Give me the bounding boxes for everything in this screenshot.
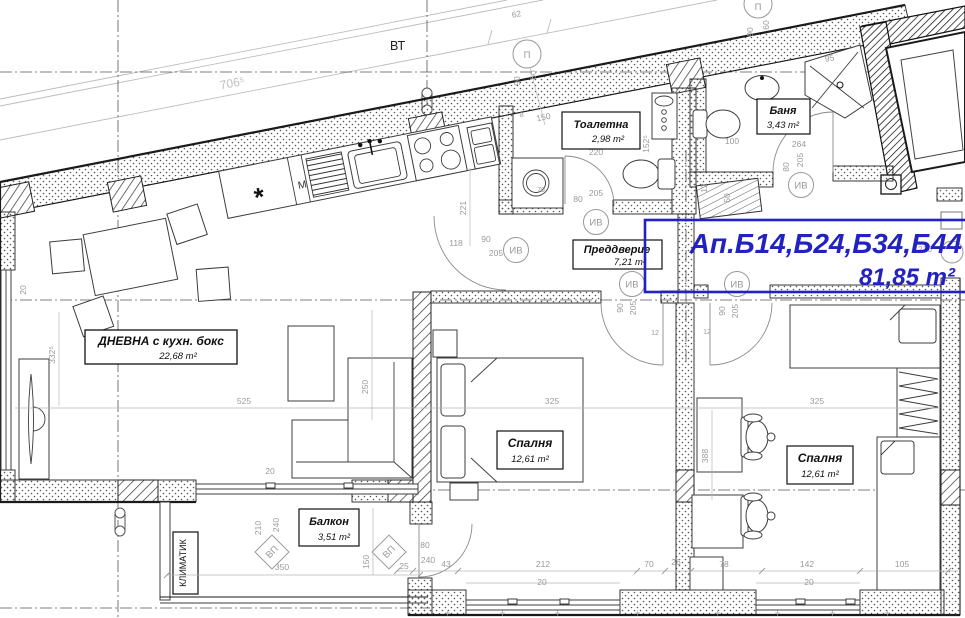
vt-label: ВТ <box>390 39 406 53</box>
stove-icon <box>407 125 467 180</box>
svg-text:3,43 m²: 3,43 m² <box>767 120 800 131</box>
svg-text:78: 78 <box>719 559 729 569</box>
svg-text:Спалня: Спалня <box>508 436 553 450</box>
washing-machine-icon <box>512 158 563 208</box>
svg-text:150: 150 <box>536 111 552 124</box>
room-label-bath: Баня 3,43 m² <box>757 99 810 134</box>
svg-text:Баня: Баня <box>769 105 797 117</box>
svg-text:332⁵: 332⁵ <box>47 346 57 364</box>
svg-text:80: 80 <box>781 162 791 172</box>
floor-plan: КЛИМАТИК * М <box>0 0 965 618</box>
svg-text:50: 50 <box>722 193 732 203</box>
svg-text:325: 325 <box>545 396 559 406</box>
svg-text:325: 325 <box>810 396 824 406</box>
floor-plan-drawing: КЛИМАТИК * М <box>0 0 965 618</box>
nightstand <box>433 330 457 357</box>
axis-marker-iv: ИВ <box>620 272 645 297</box>
svg-text:80: 80 <box>420 540 430 550</box>
svg-text:205: 205 <box>589 188 603 198</box>
bedroom1-furniture <box>433 330 583 500</box>
living-balcony-slider <box>196 483 418 494</box>
svg-text:25: 25 <box>399 561 409 571</box>
svg-text:250: 250 <box>360 380 370 394</box>
office-chair-icon <box>741 414 775 460</box>
svg-text:70: 70 <box>644 559 654 569</box>
svg-text:12,61 m²: 12,61 m² <box>511 454 549 465</box>
axis-marker-iv: ИВ <box>789 173 814 198</box>
svg-text:62: 62 <box>511 8 522 20</box>
shower-icon <box>805 45 872 118</box>
svg-text:ИВ: ИВ <box>625 280 638 291</box>
svg-text:П: П <box>524 50 531 61</box>
room-label-bedroom1: Спалня 12,61 m² <box>497 431 563 469</box>
office-chair-icon <box>741 493 775 539</box>
svg-text:90: 90 <box>512 76 522 86</box>
svg-text:80: 80 <box>573 194 583 204</box>
svg-text:12: 12 <box>703 329 711 336</box>
svg-text:Балкон: Балкон <box>309 516 349 528</box>
svg-text:2,98 m²: 2,98 m² <box>591 134 625 145</box>
svg-text:3,51 m²: 3,51 m² <box>318 532 351 543</box>
axis-marker-iv: ИВ <box>584 210 609 235</box>
svg-text:706⁵: 706⁵ <box>219 74 246 93</box>
bedroom1-window <box>466 599 620 610</box>
apartment-title: Ап.Б14,Б24,Б34,Б44 <box>689 228 963 259</box>
svg-text:118: 118 <box>449 238 463 248</box>
svg-text:205: 205 <box>489 248 503 258</box>
svg-text:205: 205 <box>795 153 805 167</box>
svg-text:150: 150 <box>361 555 371 569</box>
svg-text:Тоалетна: Тоалетна <box>574 119 629 131</box>
axis-marker-iv: ИВ <box>504 238 529 263</box>
room-label-living: ДНЕВНА с кухн. бокс 22,68 m² <box>85 330 237 364</box>
bedroom2-window <box>756 599 860 610</box>
ac-unit: КЛИМАТИК <box>173 532 198 594</box>
room-label-toilet: Тоалетна 2,98 m² <box>562 112 640 149</box>
bath-wc-icon <box>693 110 740 138</box>
svg-text:12: 12 <box>699 183 709 193</box>
toilet-wc-icon <box>623 159 675 189</box>
svg-text:12: 12 <box>651 330 659 337</box>
svg-text:ИВ: ИВ <box>794 181 807 192</box>
tv-unit <box>19 359 49 479</box>
desk <box>692 495 743 548</box>
svg-text:20: 20 <box>265 466 275 476</box>
toilet-cabinet <box>652 93 677 139</box>
svg-text:П: П <box>755 2 762 13</box>
svg-text:ИВ: ИВ <box>589 218 602 229</box>
svg-text:7,21 m²: 7,21 m² <box>614 257 647 268</box>
apartment-area: 81,85 m² <box>859 264 956 291</box>
svg-text:90: 90 <box>717 306 727 316</box>
svg-text:70: 70 <box>537 187 545 194</box>
svg-text:240: 240 <box>421 555 435 565</box>
svg-text:210: 210 <box>253 521 263 535</box>
svg-text:264: 264 <box>792 139 806 149</box>
svg-text:90: 90 <box>615 303 625 313</box>
svg-text:26: 26 <box>671 557 681 567</box>
wardrobe-icon <box>897 368 940 437</box>
svg-text:142: 142 <box>800 559 814 569</box>
single-bed-top <box>790 305 940 368</box>
svg-text:8: 8 <box>519 112 524 120</box>
svg-text:Преддверие: Преддверие <box>584 244 651 256</box>
svg-text:105: 105 <box>895 559 909 569</box>
svg-text:20: 20 <box>18 285 28 295</box>
nightstand <box>690 557 723 590</box>
axis-marker-p: П <box>744 0 772 18</box>
room-label-bedroom2: Спалня 12,61 m² <box>787 446 853 484</box>
svg-text:152⁵: 152⁵ <box>641 135 651 153</box>
svg-text:Спалня: Спалня <box>798 451 843 465</box>
svg-text:525: 525 <box>237 396 251 406</box>
svg-text:ИВ: ИВ <box>730 280 743 291</box>
ac-unit-label: КЛИМАТИК <box>178 538 188 586</box>
svg-text:388: 388 <box>700 449 710 463</box>
bath-sink-icon <box>745 76 779 101</box>
svg-text:20: 20 <box>804 577 814 587</box>
nightstand <box>450 483 478 500</box>
svg-text:12,61 m²: 12,61 m² <box>801 469 839 480</box>
svg-text:205: 205 <box>730 304 740 318</box>
svg-text:22,68 m²: 22,68 m² <box>158 351 197 362</box>
washer-icon <box>306 152 349 197</box>
svg-text:ДНЕВНА с кухн. бокс: ДНЕВНА с кухн. бокс <box>97 334 224 348</box>
room-label-vestibule: Преддверие 7,21 m² <box>573 240 662 269</box>
svg-text:240: 240 <box>271 518 281 532</box>
dining-set <box>45 200 236 340</box>
balcony-door <box>419 524 472 577</box>
svg-text:212: 212 <box>536 559 550 569</box>
svg-text:90: 90 <box>481 234 491 244</box>
svg-text:43: 43 <box>441 559 451 569</box>
room-label-balcony: Балкон 3,51 m² <box>299 509 359 546</box>
svg-text:90: 90 <box>745 27 755 37</box>
svg-text:205: 205 <box>628 301 638 315</box>
svg-text:20: 20 <box>537 577 547 587</box>
svg-text:ИВ: ИВ <box>509 246 522 257</box>
svg-text:60: 60 <box>761 20 771 30</box>
svg-text:100: 100 <box>725 136 739 146</box>
stair-core <box>860 6 965 229</box>
living-west-window <box>1 270 11 470</box>
svg-text:221: 221 <box>458 201 468 215</box>
coffee-table <box>288 326 334 401</box>
